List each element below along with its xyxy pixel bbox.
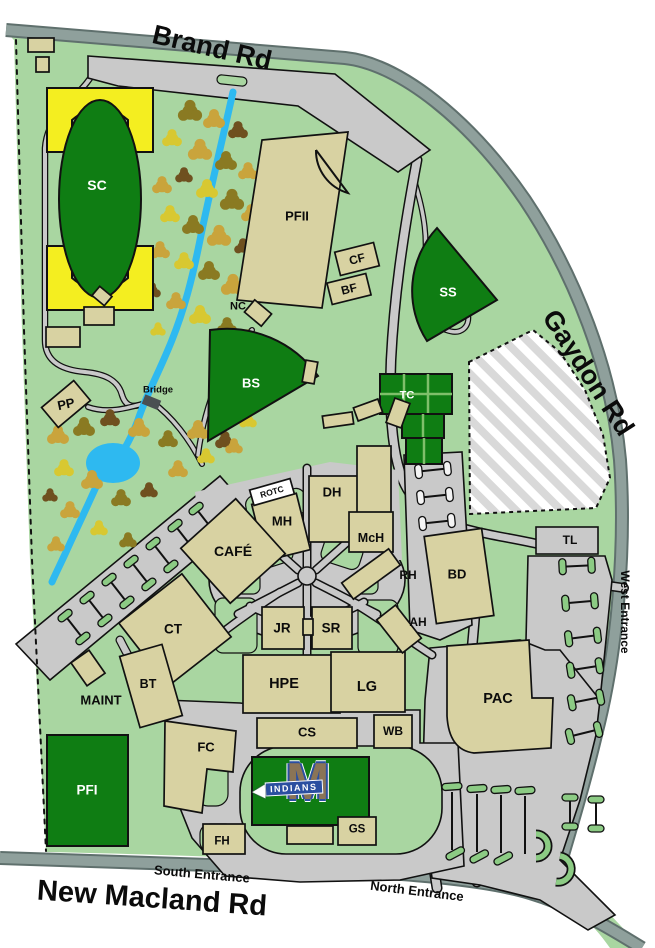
logo-team-name: INDIANS [270,782,318,794]
building-gs [338,817,376,845]
building-jr [262,607,304,649]
spear-icon [252,785,266,800]
building-mch [357,446,391,518]
building-wb [374,715,412,748]
campus-map: M INDIANS Brand RdGaydon RdNew Macland R… [0,0,655,948]
stadium-sc [47,88,153,310]
building-cs [257,718,357,748]
tl-lot [536,527,598,554]
building-hpe [243,655,340,713]
building-lg [331,652,405,712]
field-pfi [47,735,128,846]
logo-banner: INDIANS [265,780,323,797]
building-bd [424,528,494,623]
building-fh [203,824,245,854]
building-sr [312,607,352,649]
